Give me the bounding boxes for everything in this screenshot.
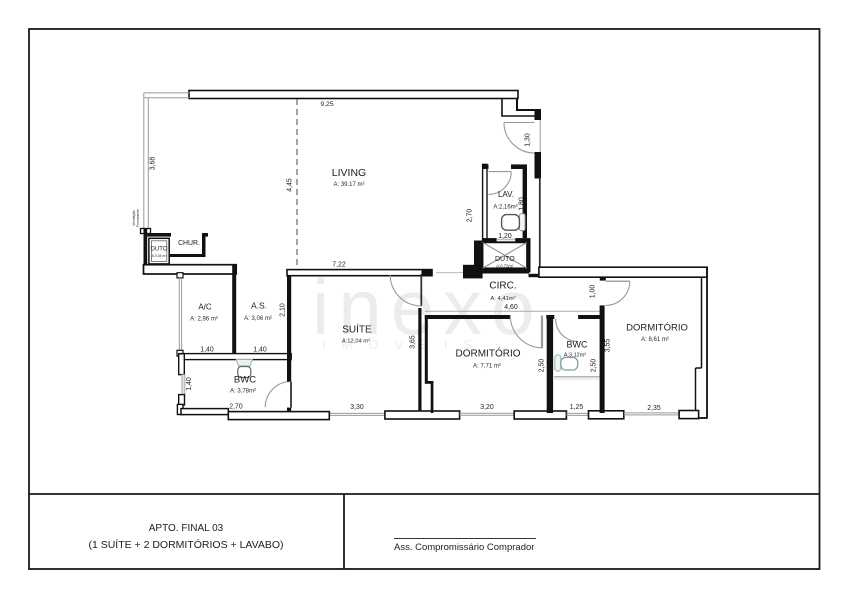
svg-text:DUTO: DUTO	[495, 256, 515, 263]
svg-text:A:0,34 m²: A:0,34 m²	[152, 254, 168, 258]
svg-text:1,40: 1,40	[186, 377, 193, 391]
svg-text:A: 3,06 m²: A: 3,06 m²	[244, 316, 272, 322]
svg-text:CIRC.: CIRC.	[489, 281, 516, 292]
svg-text:4,60: 4,60	[504, 304, 518, 311]
svg-text:LIVING: LIVING	[332, 167, 366, 179]
svg-text:1,00: 1,00	[590, 285, 597, 299]
svg-text:BWC: BWC	[234, 375, 256, 386]
svg-text:9,25: 9,25	[320, 101, 333, 108]
svg-text:A:3,12m²: A:3,12m²	[564, 353, 586, 359]
svg-text:BWC: BWC	[567, 340, 588, 350]
svg-text:4,45: 4,45	[287, 178, 294, 192]
svg-text:A/C: A/C	[198, 303, 212, 312]
svg-text:Permanente: Permanente	[136, 209, 140, 227]
svg-text:LAV.: LAV.	[498, 190, 514, 199]
svg-text:APTO. FINAL 03: APTO. FINAL 03	[149, 523, 224, 534]
svg-text:DORMITÓRIO: DORMITÓRIO	[626, 323, 688, 334]
svg-text:1,40: 1,40	[200, 347, 214, 354]
svg-text:1,40: 1,40	[253, 347, 267, 354]
svg-text:1,30: 1,30	[525, 133, 532, 147]
svg-text:A.S.: A.S.	[251, 301, 267, 311]
svg-text:2,50: 2,50	[591, 359, 598, 373]
svg-text:A: 7,71 m²: A: 7,71 m²	[473, 364, 501, 370]
svg-text:2,70: 2,70	[229, 404, 243, 411]
svg-text:A: 2,96 m²: A: 2,96 m²	[190, 317, 218, 323]
svg-text:Ass. Compromissário Comprador: Ass. Compromissário Comprador	[394, 542, 534, 553]
svg-text:A:0,72m²: A:0,72m²	[496, 264, 514, 269]
svg-text:2,10: 2,10	[280, 303, 287, 317]
svg-text:A:12,04 m²: A:12,04 m²	[342, 339, 370, 345]
svg-text:2,70: 2,70	[467, 209, 474, 223]
svg-text:1,25: 1,25	[570, 404, 584, 411]
svg-text:DORMITÓRIO: DORMITÓRIO	[456, 347, 521, 360]
svg-text:1,80: 1,80	[519, 197, 526, 211]
svg-text:3,20: 3,20	[480, 404, 494, 411]
svg-text:A:2,16m²: A:2,16m²	[493, 205, 517, 211]
svg-text:(1 SUÍTE + 2 DORMITÓRIOS + LA: (1 SUÍTE + 2 DORMITÓRIOS + LAVABO)	[88, 538, 283, 551]
svg-text:A: 8,61 m²: A: 8,61 m²	[641, 337, 669, 343]
svg-text:A: 3,78m²: A: 3,78m²	[230, 389, 256, 395]
svg-text:3,65: 3,65	[410, 335, 417, 349]
svg-text:3,68: 3,68	[150, 157, 157, 171]
svg-text:A: 4,41m²: A: 4,41m²	[490, 296, 515, 302]
svg-text:2,35: 2,35	[647, 405, 661, 412]
svg-text:A: 39.17 m²: A: 39.17 m²	[333, 182, 364, 188]
svg-text:2,50: 2,50	[539, 359, 546, 373]
svg-text:3,55: 3,55	[605, 339, 612, 353]
svg-text:7,22: 7,22	[332, 262, 346, 269]
svg-text:3,30: 3,30	[350, 404, 364, 411]
svg-text:DUTO: DUTO	[151, 247, 168, 253]
svg-text:SUÍTE: SUÍTE	[342, 323, 372, 336]
svg-text:CHUR.: CHUR.	[178, 240, 200, 247]
